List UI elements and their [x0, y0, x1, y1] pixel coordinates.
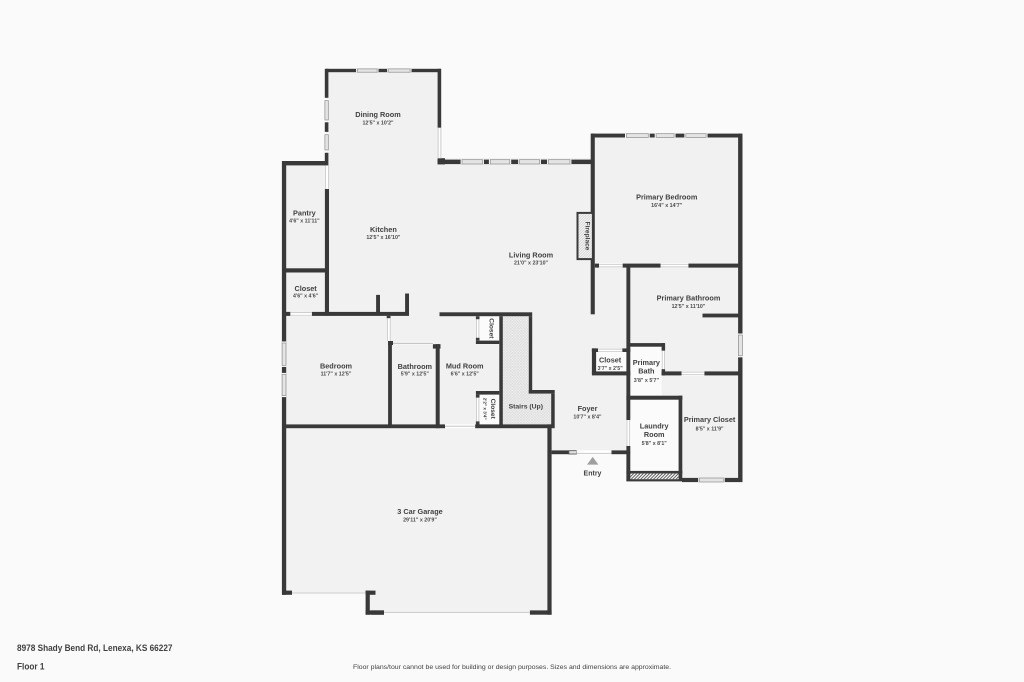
svg-text:Kitchen: Kitchen	[370, 225, 397, 234]
svg-text:Primary Bedroom: Primary Bedroom	[636, 192, 698, 201]
svg-text:3 Car Garage: 3 Car Garage	[397, 507, 442, 516]
svg-text:21'0" x 23'10": 21'0" x 23'10"	[514, 261, 549, 267]
svg-text:Floor plans/tour cannot be use: Floor plans/tour cannot be used for buil…	[353, 664, 671, 671]
svg-text:Bath: Bath	[638, 367, 654, 376]
svg-text:12'5" x 10'2": 12'5" x 10'2"	[362, 121, 394, 127]
svg-text:4'6" x 11'11": 4'6" x 11'11"	[289, 219, 320, 225]
svg-text:Bedroom: Bedroom	[320, 362, 353, 371]
svg-text:12'5" x 11'10": 12'5" x 11'10"	[672, 304, 706, 310]
svg-text:12'5" x 16'10": 12'5" x 16'10"	[366, 235, 401, 241]
svg-text:Entry: Entry	[584, 470, 602, 477]
svg-text:Closet: Closet	[294, 284, 317, 293]
svg-text:10'7" x 8'4": 10'7" x 8'4"	[573, 414, 602, 420]
svg-text:Pantry: Pantry	[293, 208, 317, 217]
svg-text:8978 Shady Bend Rd, Lenexa, KS: 8978 Shady Bend Rd, Lenexa, KS 66227	[17, 643, 173, 653]
svg-text:8'5" x 11'9": 8'5" x 11'9"	[696, 427, 724, 433]
svg-text:11'7" x 12'5": 11'7" x 12'5"	[321, 372, 352, 378]
svg-text:29'11" x 20'9": 29'11" x 20'9"	[403, 518, 437, 524]
svg-text:Mud Room: Mud Room	[446, 361, 484, 370]
svg-text:Dining Room: Dining Room	[355, 110, 401, 119]
svg-text:2'2" x 3'4": 2'2" x 3'4"	[483, 398, 488, 420]
svg-text:3'8" x 5'7": 3'8" x 5'7"	[634, 378, 660, 384]
svg-text:Foyer: Foyer	[578, 404, 598, 413]
svg-text:Living Room: Living Room	[509, 250, 554, 259]
svg-text:Fireplace: Fireplace	[584, 222, 591, 251]
svg-text:Laundry: Laundry	[640, 421, 670, 430]
svg-text:Primary Closet: Primary Closet	[684, 415, 736, 424]
svg-text:6'6" x 12'5": 6'6" x 12'5"	[451, 372, 480, 378]
svg-text:Closet: Closet	[489, 399, 496, 420]
svg-text:16'4" x 14'7": 16'4" x 14'7"	[651, 203, 683, 209]
svg-text:Closet: Closet	[599, 356, 622, 365]
svg-text:Floor 1: Floor 1	[17, 661, 45, 671]
svg-text:4'6" x 4'6": 4'6" x 4'6"	[293, 294, 319, 300]
svg-text:Stairs (Up): Stairs (Up)	[509, 403, 543, 410]
svg-text:Room: Room	[644, 430, 665, 439]
svg-text:Primary Bathroom: Primary Bathroom	[657, 293, 721, 302]
svg-text:Bathroom: Bathroom	[398, 362, 433, 371]
svg-text:5'9" x 12'5": 5'9" x 12'5"	[401, 372, 430, 378]
svg-text:Closet: Closet	[488, 318, 495, 339]
svg-text:3'7" x 2'5": 3'7" x 2'5"	[597, 366, 623, 372]
svg-text:5'8" x 8'1": 5'8" x 8'1"	[642, 441, 668, 447]
